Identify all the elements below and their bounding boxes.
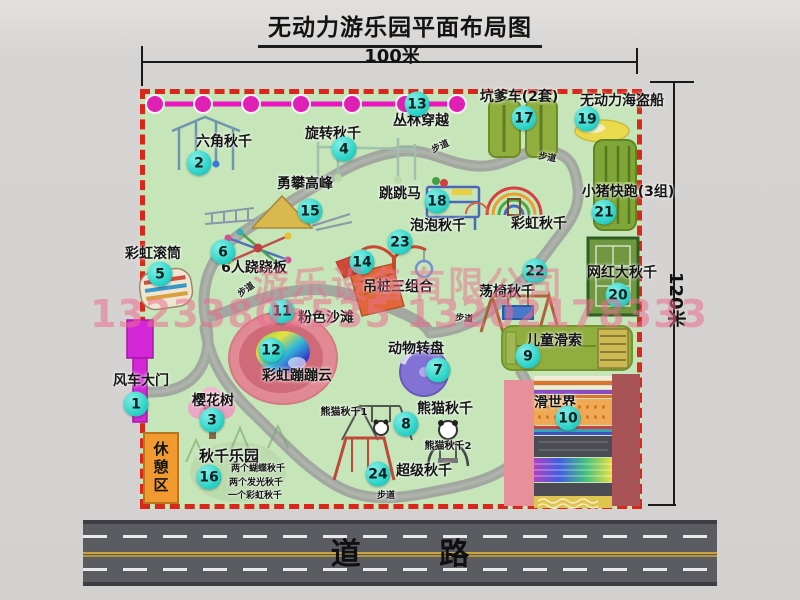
road-label: 道 路 — [297, 529, 503, 573]
road-strip: 道 路 — [83, 520, 717, 586]
park-map-page: 无动力游乐园平面布局图 — [0, 0, 800, 600]
width-dimension-label: 100米 — [364, 42, 420, 68]
rest-area-box: 休憩区 — [143, 432, 179, 504]
height-dimension-label: 120米 — [664, 272, 690, 328]
park-map-area — [140, 89, 642, 509]
